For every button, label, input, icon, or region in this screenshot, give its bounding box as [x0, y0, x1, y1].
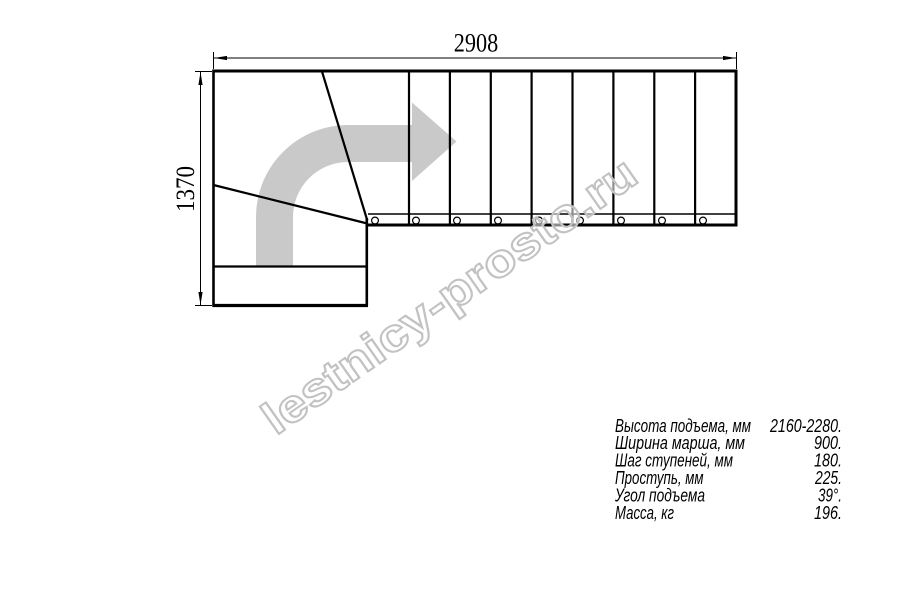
svg-text:2908: 2908	[454, 29, 499, 58]
svg-text:Масса, кг: Масса, кг	[615, 503, 674, 523]
svg-text:196.: 196.	[814, 503, 842, 523]
svg-text:1370: 1370	[171, 166, 200, 212]
